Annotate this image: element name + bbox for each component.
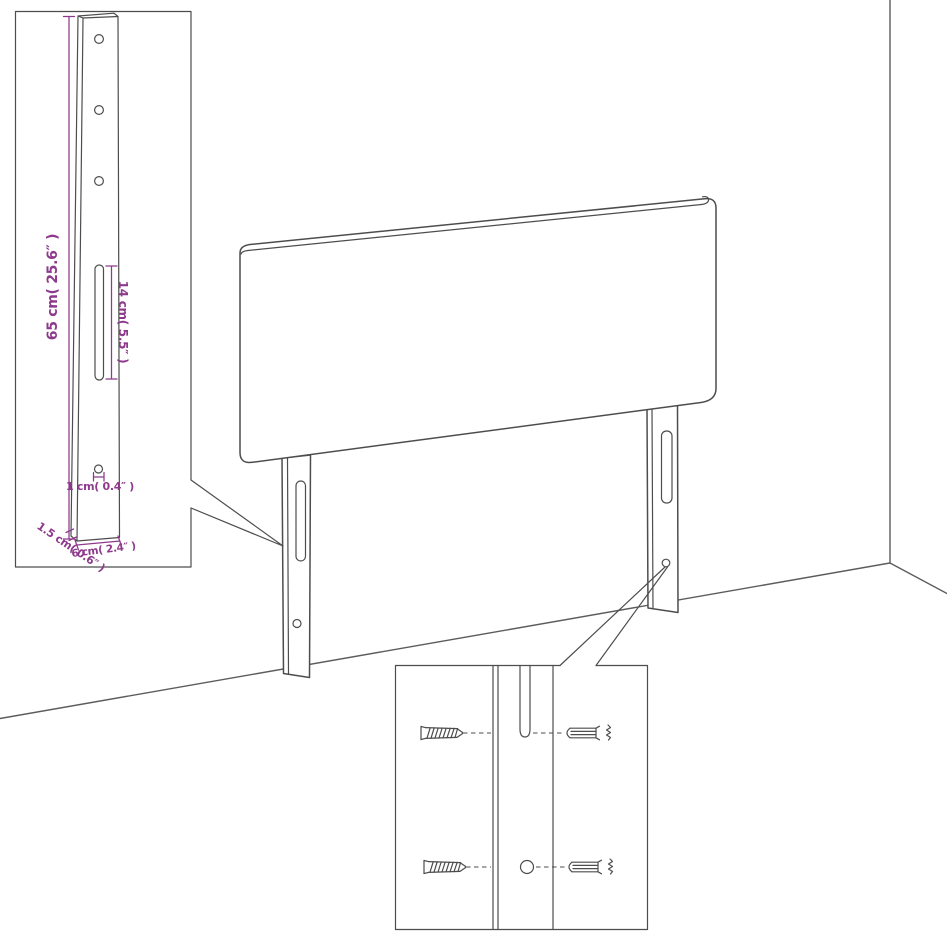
alignment-dashes [463,733,567,867]
headboard-left-leg [282,455,311,678]
wall-mark-top [607,725,611,740]
dimension-label-height: 65 cm( 25.6″ ) [45,234,61,340]
screw-bottom [424,861,466,874]
floor-line-right [890,563,947,594]
mounting-slot [520,666,530,738]
dimension-label-slot: 14 cm( 5.5″ ) [116,281,130,364]
headboard-right-leg [647,405,678,613]
leg-detail-bar [71,13,120,541]
wall-mark-bottom [609,859,613,874]
mounting-hole [521,861,534,874]
mounting-detail-inset [396,666,648,930]
wall-plug-bottom [569,860,602,874]
floor-line-left [0,563,890,719]
headboard-panel [240,197,716,463]
headboard-drawing [191,197,716,678]
wall-plug-top [567,726,600,740]
mounting-detail-box [396,666,648,930]
diagram-svg: 65 cm( 25.6″ ) 14 cm( 5.5″ ) 1 cm( 0.4″ … [0,0,947,947]
mounting-leg-strip [493,666,553,930]
leg-detail-inset: 65 cm( 25.6″ ) 14 cm( 5.5″ ) 1 cm( 0.4″ … [16,12,192,575]
screw-top [421,727,463,740]
dimension-label-hole: 1 cm( 0.4″ ) [66,480,134,493]
dimension-label-width: 6 cm( 2.4″ ) [71,540,137,560]
callout-to-leg-inset [191,480,283,546]
assembly-diagram: 65 cm( 25.6″ ) 14 cm( 5.5″ ) 1 cm( 0.4″ … [0,0,947,947]
